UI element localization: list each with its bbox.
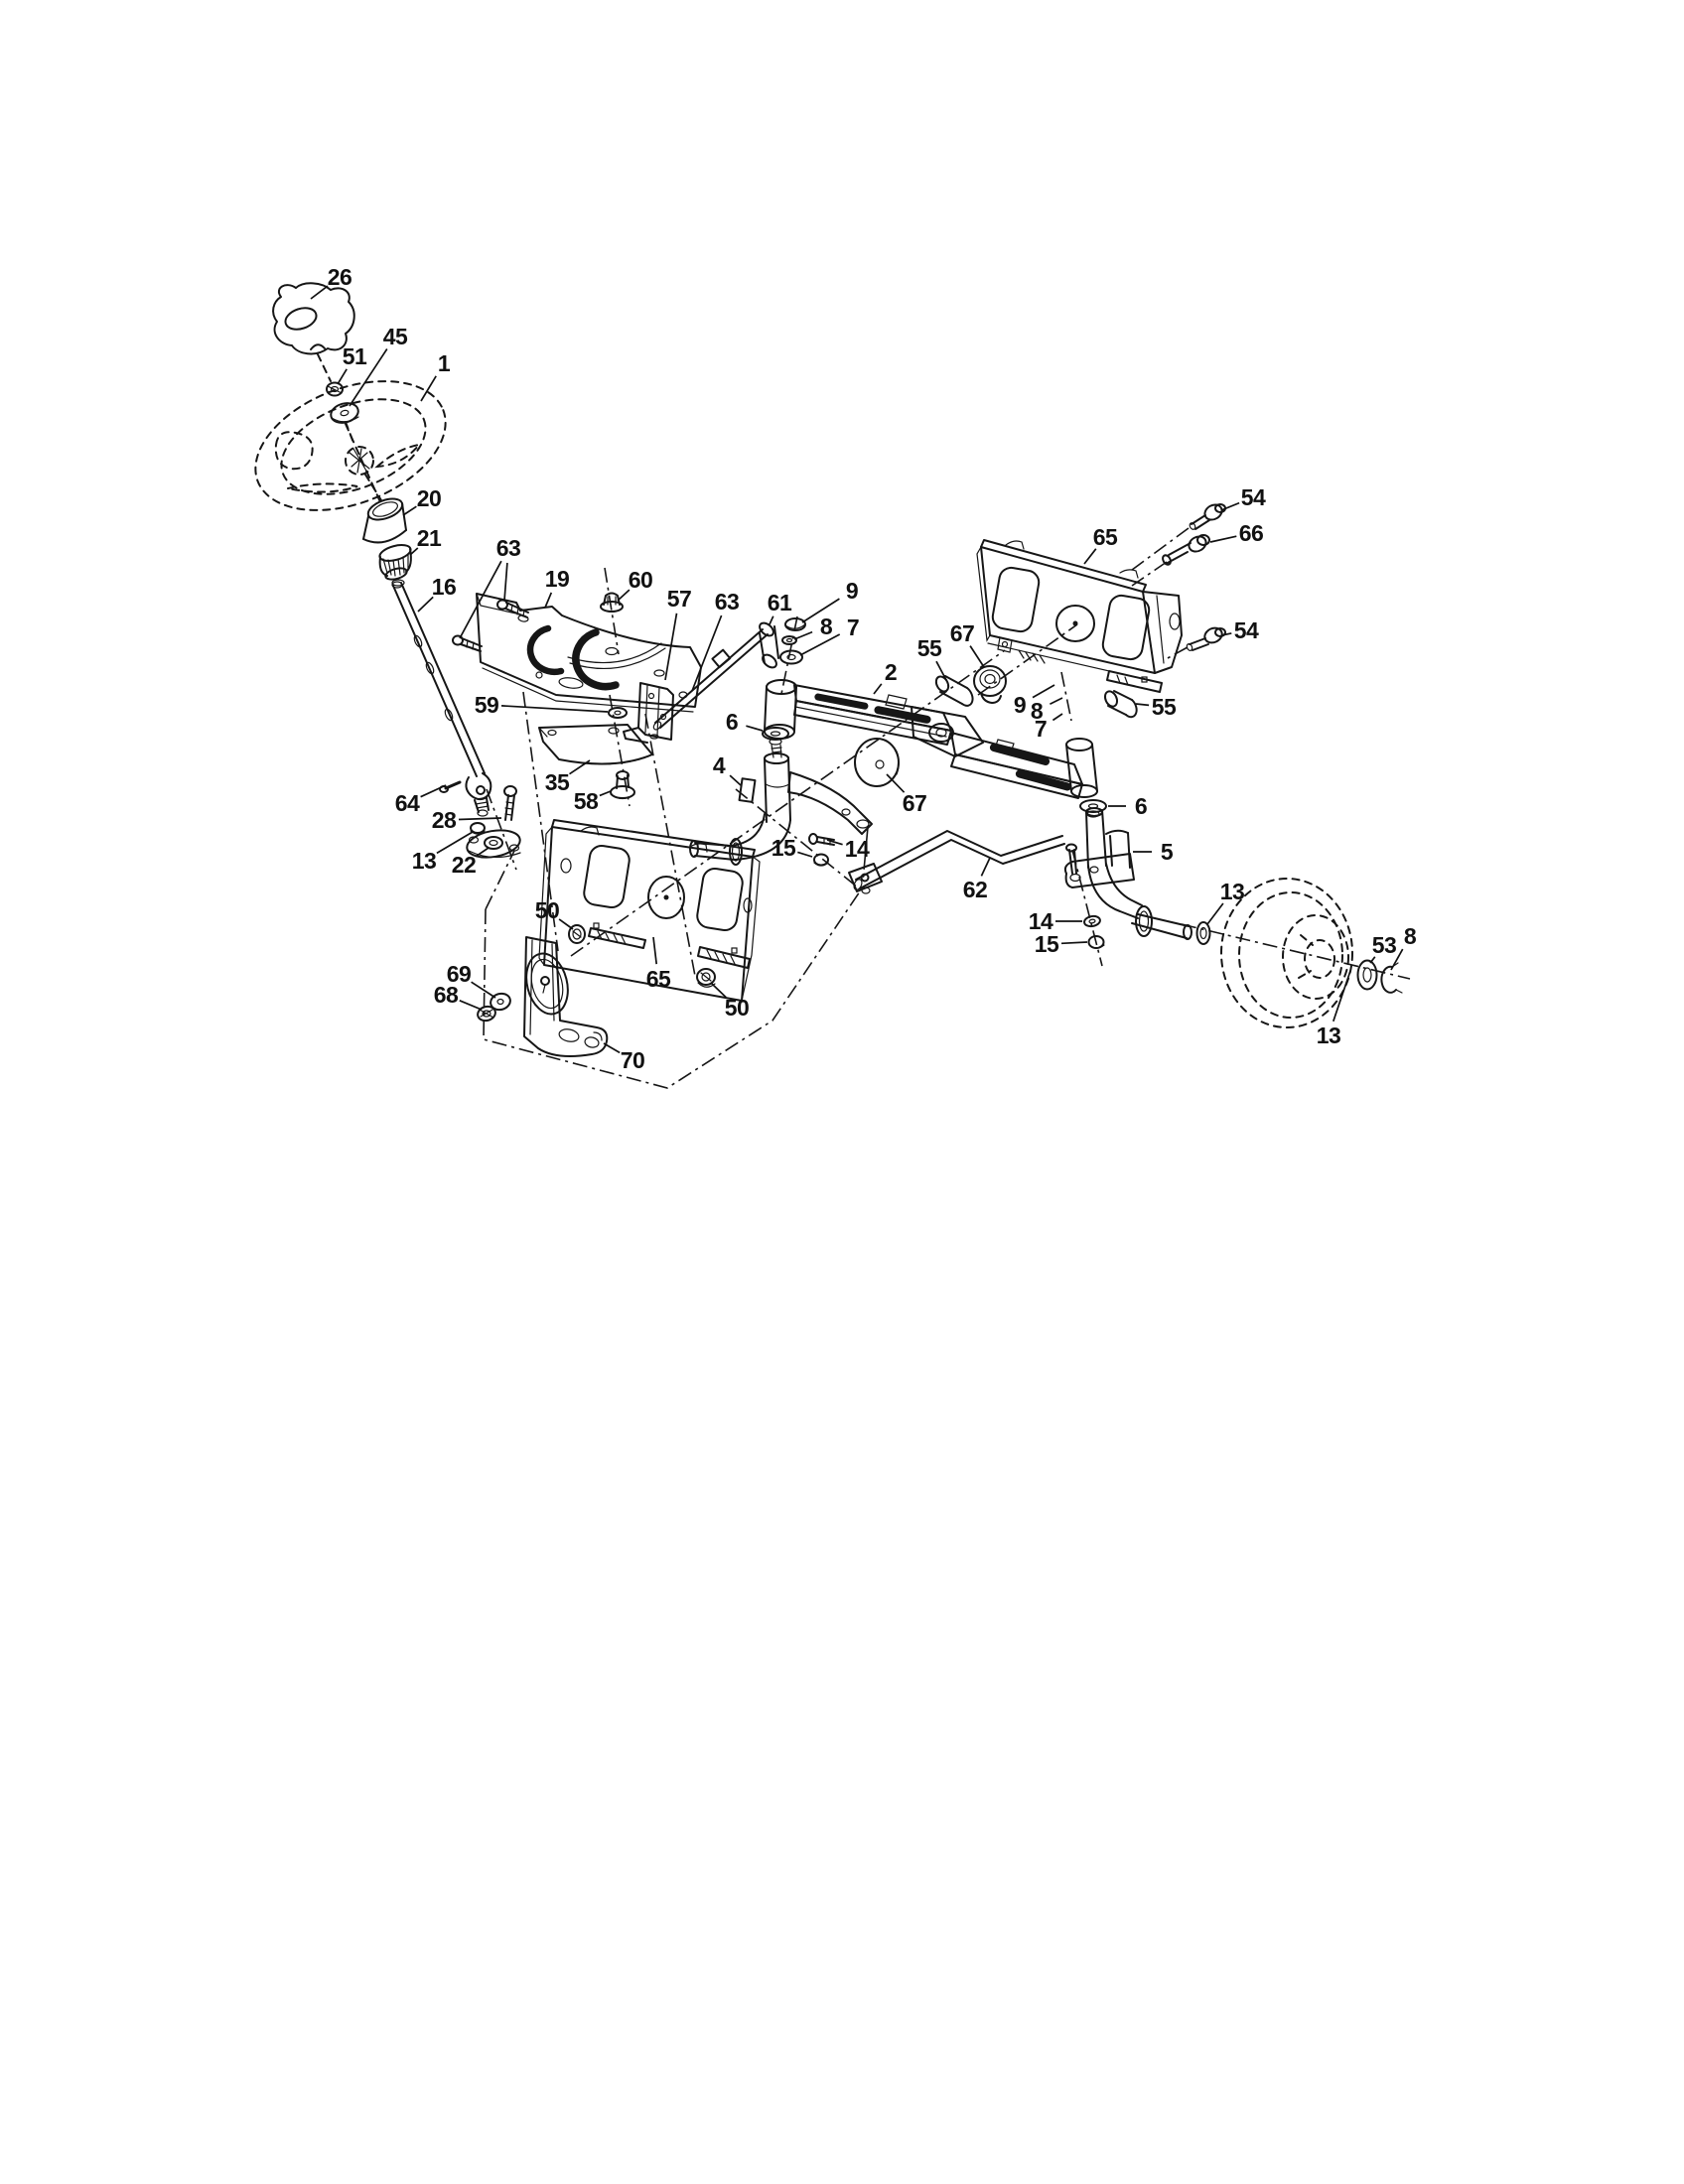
part-label-53-45: 53 — [1370, 932, 1396, 963]
part-label-15-43: 15 — [1035, 931, 1087, 957]
part-number-text-53: 53 — [1372, 932, 1397, 958]
part-number-text-15: 15 — [772, 835, 796, 861]
part-bolt-58 — [611, 771, 634, 799]
part-number-text-14: 14 — [845, 836, 870, 862]
part-washer-45 — [329, 400, 360, 426]
part-rod-and-spacer-61 — [652, 620, 779, 731]
part-label-7-25: 7 — [1035, 714, 1062, 742]
part-label-22-37: 22 — [452, 848, 489, 878]
part-label-55-17: 55 — [917, 635, 946, 680]
part-label-63-7: 63 — [460, 535, 520, 638]
part-adapter-21 — [378, 542, 413, 586]
part-number-text-6: 6 — [726, 709, 738, 735]
part-number-text-15: 15 — [1035, 931, 1059, 957]
part-washer-7-left — [780, 651, 802, 664]
part-washer-59 — [609, 708, 627, 718]
part-number-text-67: 67 — [903, 790, 927, 816]
part-number-text-8: 8 — [820, 614, 833, 639]
part-gear-bracket-70 — [520, 937, 607, 1056]
leader-line-67 — [970, 646, 984, 667]
steering-wheel-hub-splines — [350, 449, 369, 473]
construction-lines — [318, 354, 1410, 1088]
part-number-text-66: 66 — [1239, 520, 1264, 546]
leader-line-65 — [1084, 549, 1096, 564]
diagram-page: 2645511202116631960576361987255676554665… — [0, 0, 1684, 2184]
part-label-59-27: 59 — [475, 692, 608, 718]
part-number-text-64: 64 — [395, 790, 420, 816]
part-label-70-53: 70 — [604, 1043, 644, 1073]
part-label-68-52: 68 — [434, 982, 482, 1010]
part-bolt-54-top — [1189, 501, 1225, 530]
part-number-text-61: 61 — [768, 590, 792, 615]
adapter-splines — [383, 555, 408, 576]
leader-line-55 — [1136, 704, 1149, 705]
part-washer-14-right — [1083, 915, 1100, 928]
part-label-65-19: 65 — [1084, 524, 1118, 564]
part-label-13-44: 13 — [1207, 879, 1244, 924]
part-number-text-7: 7 — [847, 614, 859, 640]
part-number-text-65: 65 — [1093, 524, 1118, 550]
part-label-15-38: 15 — [772, 835, 812, 861]
part-flange-bushing-67-top — [974, 666, 1006, 703]
leader-line-63 — [460, 561, 501, 638]
part-number-text-54: 54 — [1234, 617, 1259, 643]
leader-line-63 — [692, 615, 722, 691]
part-number-text-9: 9 — [846, 578, 858, 604]
part-number-text-19: 19 — [545, 566, 570, 592]
part-label-26-0: 26 — [311, 264, 351, 299]
part-number-text-20: 20 — [417, 485, 442, 511]
part-number-text-58: 58 — [574, 788, 599, 814]
leader-line-28 — [459, 818, 501, 820]
part-label-51-2: 51 — [338, 343, 367, 384]
part-number-text-4: 4 — [713, 752, 726, 778]
part-number-text-8: 8 — [1404, 923, 1417, 949]
part-number-text-54: 54 — [1241, 484, 1266, 510]
part-label-16-6: 16 — [418, 574, 456, 612]
part-number-text-59: 59 — [475, 692, 499, 718]
leader-line-70 — [604, 1043, 620, 1052]
part-number-text-13: 13 — [1317, 1023, 1341, 1048]
part-steering-shaft-16 — [392, 582, 485, 776]
part-label-67-18: 67 — [950, 620, 984, 667]
part-number-text-63: 63 — [496, 535, 521, 561]
part-number-text-5: 5 — [1161, 839, 1174, 865]
part-number-text-28: 28 — [432, 807, 457, 833]
part-label-57-10: 57 — [665, 586, 691, 680]
part-number-text-57: 57 — [667, 586, 692, 612]
part-label-19-8: 19 — [545, 566, 570, 608]
part-number-text-50: 50 — [725, 995, 750, 1021]
leader-line-2 — [874, 684, 882, 694]
leader-line-59 — [501, 706, 608, 712]
part-sector-gear-35 — [539, 725, 652, 764]
part-number-text-13: 13 — [1220, 879, 1245, 904]
leader-line-15 — [1061, 942, 1087, 943]
part-label-21-5: 21 — [410, 525, 442, 555]
part-bolt-54-bottom — [1186, 625, 1225, 651]
part-number-text-70: 70 — [621, 1047, 645, 1073]
leader-line-58 — [600, 791, 611, 795]
part-number-text-51: 51 — [343, 343, 367, 369]
part-bushing-55-right — [1103, 689, 1137, 717]
part-label-60-9: 60 — [618, 567, 652, 601]
part-bushing-55-left — [933, 674, 972, 705]
part-number-text-1: 1 — [438, 350, 451, 376]
part-nut-15-left — [814, 855, 828, 867]
part-washer-13-inner — [1197, 922, 1210, 944]
part-number-text-9: 9 — [1014, 692, 1026, 718]
part-label-5-41: 5 — [1133, 839, 1174, 865]
part-number-text-65: 65 — [646, 966, 671, 992]
part-number-text-62: 62 — [963, 877, 988, 902]
part-label-13-47: 13 — [1317, 971, 1350, 1048]
part-label-6-30: 6 — [726, 709, 763, 735]
part-number-text-2: 2 — [885, 659, 897, 685]
part-number-text-6: 6 — [1135, 793, 1147, 819]
part-label-65-49: 65 — [646, 937, 671, 992]
part-label-4-31: 4 — [713, 752, 741, 785]
part-bolt-28 — [504, 786, 516, 820]
part-number-text-60: 60 — [629, 567, 653, 593]
part-drag-link-62 — [849, 831, 1064, 893]
leader-line-62 — [981, 858, 990, 876]
part-label-54-22: 54 — [1221, 617, 1259, 643]
leader-line-66 — [1210, 536, 1236, 542]
leader-line-13 — [1333, 971, 1350, 1022]
part-number-text-45: 45 — [383, 324, 408, 349]
part-number-text-21: 21 — [417, 525, 442, 551]
leader-line-6 — [746, 726, 763, 731]
part-nut-51 — [327, 383, 343, 396]
part-label-62-40: 62 — [963, 858, 990, 902]
part-bolt-66 — [1161, 533, 1209, 566]
part-label-28-35: 28 — [432, 807, 501, 833]
part-label-6-33: 6 — [1108, 793, 1147, 819]
part-number-text-26: 26 — [328, 264, 352, 290]
leader-line-50 — [559, 919, 573, 929]
part-label-1-3: 1 — [421, 350, 451, 401]
part-label-67-32: 67 — [887, 774, 926, 816]
part-number-text-55: 55 — [1152, 694, 1177, 720]
part-label-58-29: 58 — [574, 788, 611, 814]
leader-line-51 — [338, 369, 347, 384]
part-washer-8-left — [782, 636, 796, 644]
leader-line-4 — [730, 775, 741, 785]
part-number-text-50: 50 — [535, 897, 560, 923]
part-number-text-55: 55 — [917, 635, 942, 661]
part-number-text-68: 68 — [434, 982, 459, 1008]
part-boot-20 — [363, 494, 406, 542]
leader-line-15 — [797, 852, 812, 857]
part-number-text-35: 35 — [545, 769, 570, 795]
part-washer-69 — [489, 992, 511, 1013]
part-number-text-16: 16 — [432, 574, 457, 600]
part-label-55-26: 55 — [1136, 694, 1177, 720]
part-bolt-14-left — [809, 834, 834, 845]
part-number-text-67: 67 — [950, 620, 975, 646]
leader-line-8 — [1050, 698, 1062, 704]
part-label-66-21: 66 — [1210, 520, 1263, 546]
labels-layer: 2645511202116631960576361987255676554665… — [311, 264, 1417, 1073]
part-label-54-20: 54 — [1221, 484, 1266, 510]
leader-line-68 — [460, 1001, 482, 1010]
leader-line-69 — [472, 982, 495, 998]
part-label-20-4: 20 — [403, 485, 441, 515]
leader-line-26 — [311, 286, 328, 299]
leader-line-13 — [1207, 903, 1223, 924]
part-label-2-16: 2 — [874, 659, 897, 694]
leader-line-65 — [653, 937, 656, 964]
leader-line-7 — [1052, 714, 1062, 721]
leader-line-19 — [545, 593, 551, 608]
leader-line-8 — [794, 632, 812, 639]
leader-line-20 — [403, 506, 416, 515]
leader-line-61 — [770, 616, 773, 624]
part-number-text-7: 7 — [1035, 716, 1047, 742]
part-washer-53 — [1358, 961, 1377, 990]
part-axle-support-65-right — [977, 540, 1182, 692]
leader-line-63 — [504, 563, 507, 601]
diagram-svg: 2645511202116631960576361987255676554665… — [0, 0, 1684, 2184]
part-number-text-13: 13 — [412, 848, 437, 874]
part-label-8-14: 8 — [794, 614, 833, 639]
leader-line-9 — [1033, 685, 1054, 698]
part-number-text-63: 63 — [715, 589, 740, 614]
part-number-text-22: 22 — [452, 852, 477, 878]
